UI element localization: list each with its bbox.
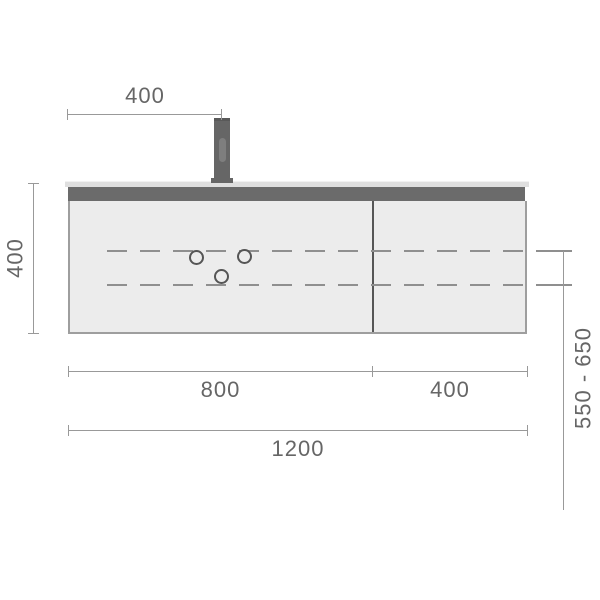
dimension-tick xyxy=(28,333,39,334)
section-divider-line xyxy=(372,201,374,332)
dimension-line-mounting-height xyxy=(563,251,564,510)
dimension-line-section-widths xyxy=(68,371,528,372)
dimension-label-faucet-offset: 400 xyxy=(68,84,222,108)
dimension-tick xyxy=(221,109,222,120)
dimension-tick xyxy=(67,109,68,120)
dimension-tick xyxy=(527,366,528,377)
dimension-line-total-width xyxy=(68,430,528,431)
dimension-tick xyxy=(68,425,69,436)
dimension-label-mounting-height: 550 - 650 xyxy=(572,249,596,508)
service-line-lower xyxy=(107,284,572,286)
dimension-label-left-section: 800 xyxy=(68,378,373,402)
countertop-front-bar xyxy=(68,187,525,201)
service-line-upper xyxy=(107,250,572,252)
faucet-base xyxy=(211,178,233,183)
service-hole xyxy=(237,249,252,264)
dimension-label-total-width: 1200 xyxy=(68,437,528,461)
dimension-tick xyxy=(527,425,528,436)
faucet-lever xyxy=(219,138,226,162)
dimension-tick xyxy=(28,183,39,184)
dimension-tick xyxy=(372,366,373,377)
service-hole xyxy=(214,269,229,284)
dimension-line-cabinet-height xyxy=(33,183,34,334)
service-hole xyxy=(189,250,204,265)
technical-drawing-canvas: { "drawing": { "type": "technical-dimens… xyxy=(0,0,600,600)
cabinet-body xyxy=(68,201,527,334)
dimension-label-right-section: 400 xyxy=(373,378,527,402)
dimension-line-faucet-offset xyxy=(68,114,222,115)
dimension-tick xyxy=(68,366,69,377)
dimension-label-cabinet-height: 400 xyxy=(4,183,28,334)
